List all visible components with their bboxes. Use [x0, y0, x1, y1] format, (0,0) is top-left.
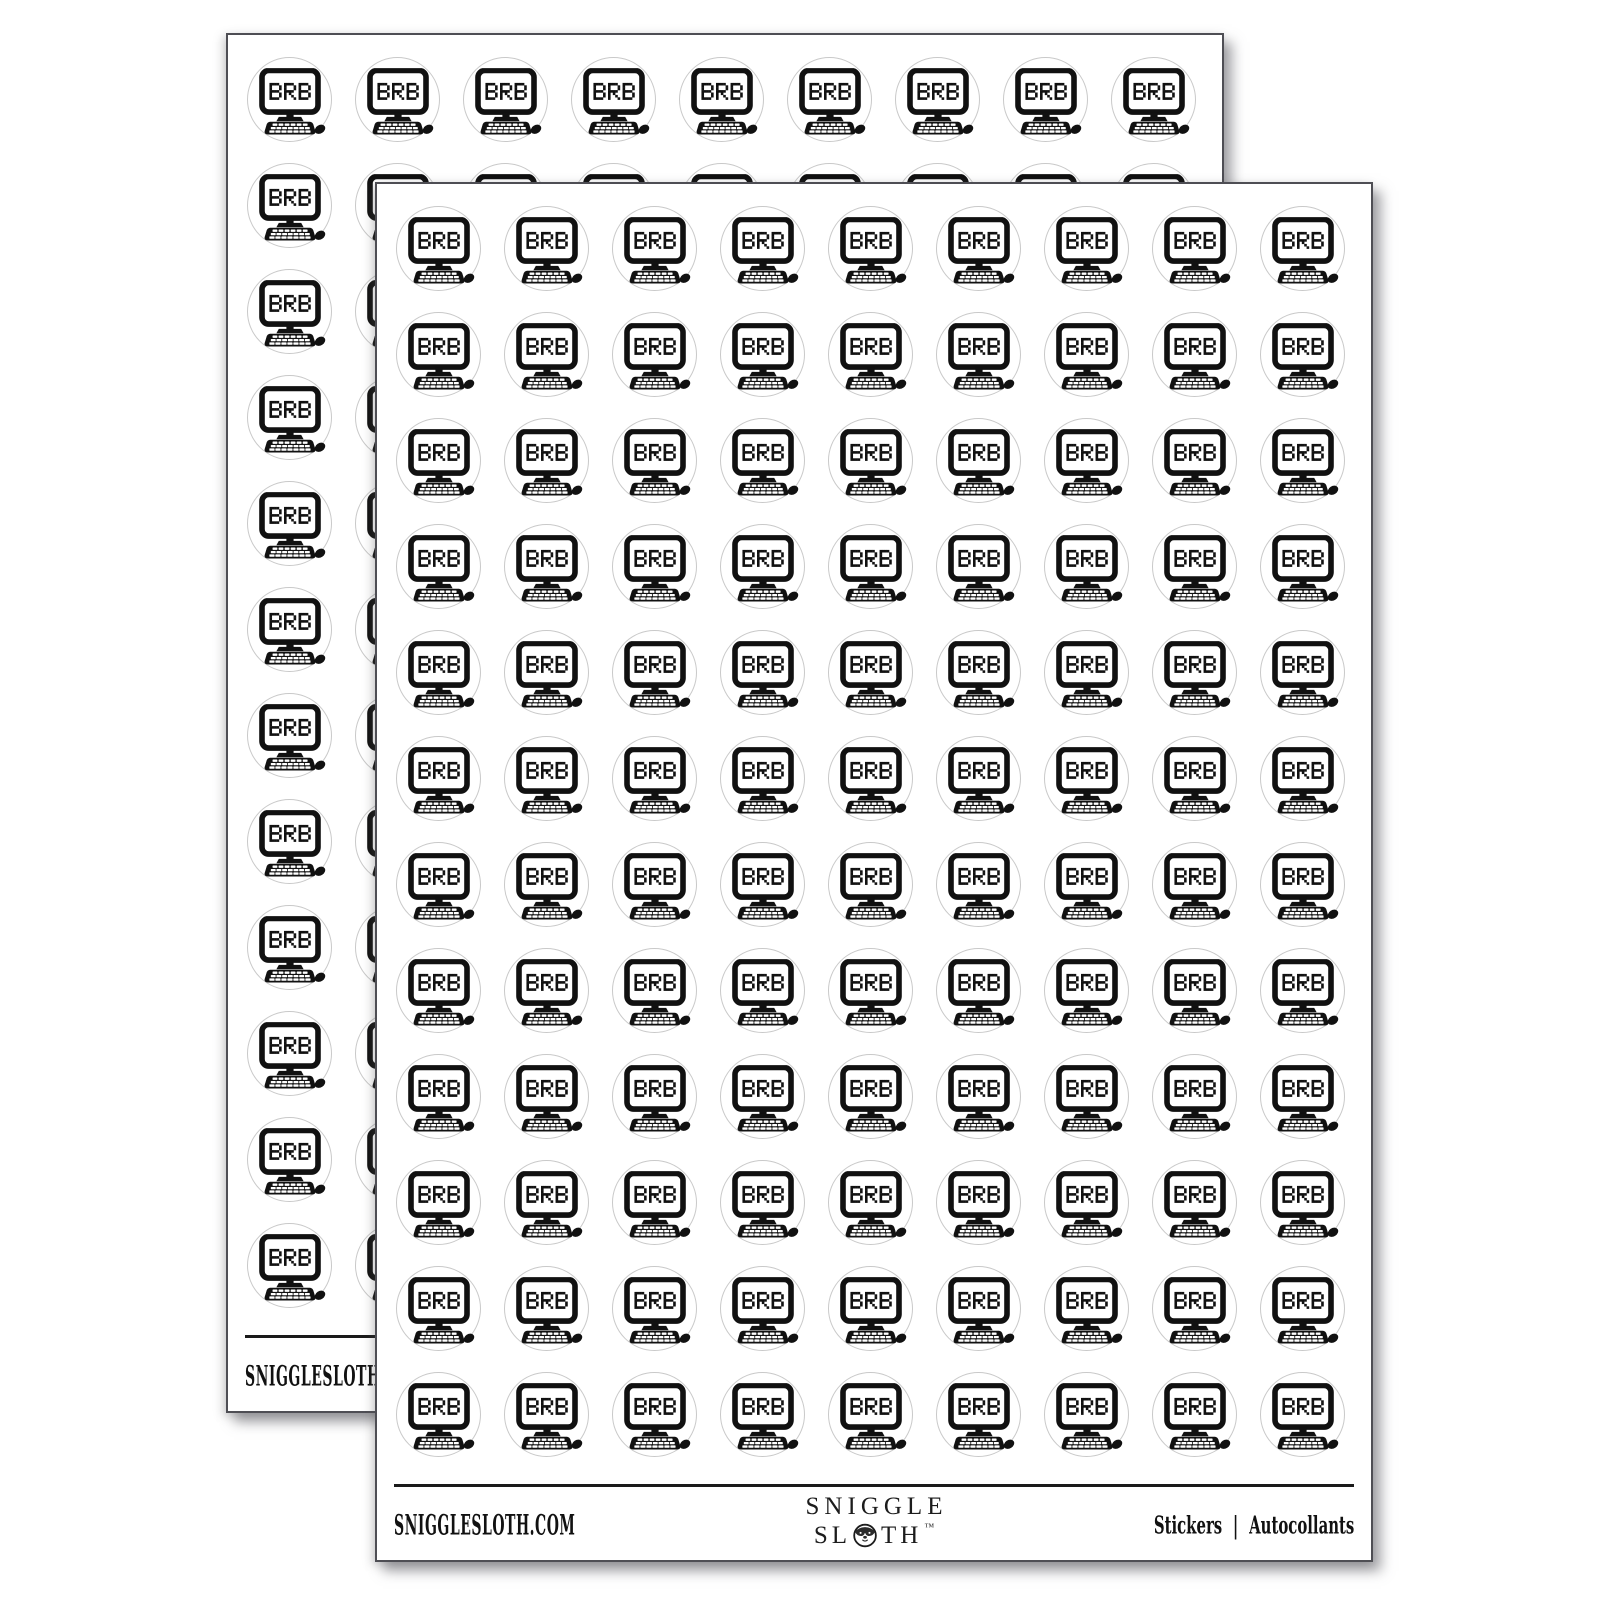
sticker-brb [247, 269, 332, 354]
brb-computer-monitor-keyboard-mouse-icon [507, 1171, 587, 1240]
sticker-brb [247, 481, 332, 566]
brb-computer-monitor-keyboard-mouse-icon [1155, 323, 1235, 392]
brb-computer-monitor-keyboard-mouse-icon [250, 704, 330, 773]
sticker-brb [1044, 312, 1129, 397]
brb-computer-monitor-keyboard-mouse-icon [507, 641, 587, 710]
sticker-brb [612, 418, 697, 503]
sticker-brb [504, 1266, 589, 1351]
brb-computer-monitor-keyboard-mouse-icon [507, 1277, 587, 1346]
brb-computer-monitor-keyboard-mouse-icon [831, 429, 911, 498]
sticker-brb [1260, 948, 1345, 1033]
brb-computer-monitor-keyboard-mouse-icon [507, 853, 587, 922]
brb-computer-monitor-keyboard-mouse-icon [723, 853, 803, 922]
brb-computer-monitor-keyboard-mouse-icon [1047, 1171, 1127, 1240]
brb-computer-monitor-keyboard-mouse-icon [399, 959, 479, 1028]
brb-computer-monitor-keyboard-mouse-icon [507, 535, 587, 604]
brb-computer-monitor-keyboard-mouse-icon [831, 747, 911, 816]
sticker-brb [396, 206, 481, 291]
brb-computer-monitor-keyboard-mouse-icon [1155, 853, 1235, 922]
sticker-brb [936, 842, 1021, 927]
brb-computer-monitor-keyboard-mouse-icon [1263, 429, 1343, 498]
brb-computer-monitor-keyboard-mouse-icon [939, 959, 1019, 1028]
sticker-brb [1044, 524, 1129, 609]
sticker-brb [1152, 418, 1237, 503]
sticker-brb [1152, 1372, 1237, 1457]
brb-computer-monitor-keyboard-mouse-icon [831, 1277, 911, 1346]
brand-logo: SNIGGLE SL TH ™ [801, 1494, 948, 1548]
brb-computer-monitor-keyboard-mouse-icon [831, 535, 911, 604]
brb-computer-monitor-keyboard-mouse-icon [250, 598, 330, 667]
brb-computer-monitor-keyboard-mouse-icon [615, 1171, 695, 1240]
brb-computer-monitor-keyboard-mouse-icon [1155, 429, 1235, 498]
brb-computer-monitor-keyboard-mouse-icon [250, 810, 330, 879]
sticker-grid [396, 206, 1345, 1457]
brb-computer-monitor-keyboard-mouse-icon [831, 1065, 911, 1134]
brb-computer-monitor-keyboard-mouse-icon [1047, 1383, 1127, 1452]
brb-computer-monitor-keyboard-mouse-icon [939, 535, 1019, 604]
sticker-brb [612, 842, 697, 927]
brb-computer-monitor-keyboard-mouse-icon [723, 641, 803, 710]
sticker-brb [247, 693, 332, 778]
sticker-brb [720, 206, 805, 291]
sticker-brb [936, 948, 1021, 1033]
brb-computer-monitor-keyboard-mouse-icon [1155, 1383, 1235, 1452]
sticker-brb [247, 799, 332, 884]
brb-computer-monitor-keyboard-mouse-icon [615, 959, 695, 1028]
sticker-brb [1260, 206, 1345, 291]
product-image: SNIGGLESLOTH.COM SNIGGLE SL TH ™ Sticker… [0, 0, 1600, 1600]
brb-computer-monitor-keyboard-mouse-icon [250, 1022, 330, 1091]
brb-computer-monitor-keyboard-mouse-icon [1047, 217, 1127, 286]
sticker-brb [504, 312, 589, 397]
sticker-brb [1044, 842, 1129, 927]
sticker-brb [1044, 736, 1129, 821]
brb-computer-monitor-keyboard-mouse-icon [939, 853, 1019, 922]
sticker-brb [1044, 948, 1129, 1033]
brb-computer-monitor-keyboard-mouse-icon [1047, 641, 1127, 710]
sticker-brb [936, 1160, 1021, 1245]
sticker-brb [1044, 418, 1129, 503]
sticker-brb [828, 1266, 913, 1351]
brb-computer-monitor-keyboard-mouse-icon [615, 641, 695, 710]
sticker-brb [612, 1160, 697, 1245]
sticker-brb [1044, 1160, 1129, 1245]
brb-computer-monitor-keyboard-mouse-icon [399, 535, 479, 604]
sticker-brb [247, 375, 332, 460]
brb-computer-monitor-keyboard-mouse-icon [1263, 747, 1343, 816]
brb-computer-monitor-keyboard-mouse-icon [615, 1065, 695, 1134]
sticker-brb [247, 587, 332, 672]
sticker-brb [1260, 1160, 1345, 1245]
brb-computer-monitor-keyboard-mouse-icon [507, 747, 587, 816]
sticker-brb [828, 1160, 913, 1245]
brb-computer-monitor-keyboard-mouse-icon [399, 323, 479, 392]
product-type-labels: Stickers | Autocollants [1154, 1511, 1354, 1540]
brb-computer-monitor-keyboard-mouse-icon [615, 535, 695, 604]
sticker-brb [396, 312, 481, 397]
sticker-brb [504, 1054, 589, 1139]
sticker-brb [720, 948, 805, 1033]
sticker-brb [1044, 630, 1129, 715]
trademark-symbol: ™ [924, 1523, 934, 1533]
brb-computer-monitor-keyboard-mouse-icon [723, 1065, 803, 1134]
sticker-brb [504, 1160, 589, 1245]
brb-computer-monitor-keyboard-mouse-icon [1263, 1277, 1343, 1346]
sticker-brb [396, 948, 481, 1033]
sticker-brb [936, 206, 1021, 291]
sticker-brb [612, 312, 697, 397]
brb-computer-monitor-keyboard-mouse-icon [1155, 535, 1235, 604]
brb-computer-monitor-keyboard-mouse-icon [615, 323, 695, 392]
sticker-brb [828, 312, 913, 397]
brb-computer-monitor-keyboard-mouse-icon [1263, 853, 1343, 922]
brb-computer-monitor-keyboard-mouse-icon [250, 492, 330, 561]
sticker-brb [1260, 1054, 1345, 1139]
sticker-brb [571, 57, 656, 142]
brb-computer-monitor-keyboard-mouse-icon [615, 1383, 695, 1452]
sticker-brb [1152, 736, 1237, 821]
brb-computer-monitor-keyboard-mouse-icon [831, 959, 911, 1028]
brb-computer-monitor-keyboard-mouse-icon [723, 535, 803, 604]
brb-computer-monitor-keyboard-mouse-icon [507, 429, 587, 498]
sticker-brb [936, 630, 1021, 715]
sticker-brb [1260, 312, 1345, 397]
brb-computer-monitor-keyboard-mouse-icon [1047, 747, 1127, 816]
brb-computer-monitor-keyboard-mouse-icon [466, 68, 546, 137]
brb-computer-monitor-keyboard-mouse-icon [399, 747, 479, 816]
sticker-brb [720, 842, 805, 927]
brb-computer-monitor-keyboard-mouse-icon [250, 386, 330, 455]
brb-computer-monitor-keyboard-mouse-icon [1047, 1065, 1127, 1134]
sticker-brb [828, 736, 913, 821]
sticker-brb [720, 312, 805, 397]
brb-computer-monitor-keyboard-mouse-icon [250, 1128, 330, 1197]
brb-computer-monitor-keyboard-mouse-icon [358, 68, 438, 137]
brb-computer-monitor-keyboard-mouse-icon [399, 217, 479, 286]
sticker-brb [355, 57, 440, 142]
sticker-brb [504, 842, 589, 927]
sticker-brb [1003, 57, 1088, 142]
sticker-sheet-front: SNIGGLESLOTH.COM SNIGGLE SL TH ™ Sticker… [375, 182, 1373, 1562]
brb-computer-monitor-keyboard-mouse-icon [615, 217, 695, 286]
brb-computer-monitor-keyboard-mouse-icon [1263, 641, 1343, 710]
brb-computer-monitor-keyboard-mouse-icon [723, 1277, 803, 1346]
sticker-brb [936, 736, 1021, 821]
brb-computer-monitor-keyboard-mouse-icon [1114, 68, 1194, 137]
sticker-brb [612, 948, 697, 1033]
sticker-brb [1260, 1266, 1345, 1351]
sticker-brb [247, 57, 332, 142]
sticker-brb [720, 736, 805, 821]
brb-computer-monitor-keyboard-mouse-icon [1263, 535, 1343, 604]
sticker-brb [504, 206, 589, 291]
sticker-brb [1152, 206, 1237, 291]
website-url: SNIGGLESLOTH.COM [394, 1509, 575, 1542]
brb-computer-monitor-keyboard-mouse-icon [399, 1383, 479, 1452]
brb-computer-monitor-keyboard-mouse-icon [939, 323, 1019, 392]
brb-computer-monitor-keyboard-mouse-icon [1155, 1065, 1235, 1134]
sticker-brb [1044, 1266, 1129, 1351]
brb-computer-monitor-keyboard-mouse-icon [250, 916, 330, 985]
brb-computer-monitor-keyboard-mouse-icon [682, 68, 762, 137]
brb-computer-monitor-keyboard-mouse-icon [399, 853, 479, 922]
brb-computer-monitor-keyboard-mouse-icon [399, 1171, 479, 1240]
sticker-brb [1260, 1372, 1345, 1457]
brb-computer-monitor-keyboard-mouse-icon [939, 1277, 1019, 1346]
brb-computer-monitor-keyboard-mouse-icon [723, 1171, 803, 1240]
brb-computer-monitor-keyboard-mouse-icon [790, 68, 870, 137]
brb-computer-monitor-keyboard-mouse-icon [939, 1171, 1019, 1240]
sticker-brb [1152, 1054, 1237, 1139]
brb-computer-monitor-keyboard-mouse-icon [723, 217, 803, 286]
sticker-brb [828, 1054, 913, 1139]
sticker-brb [504, 736, 589, 821]
sticker-brb [504, 630, 589, 715]
brb-computer-monitor-keyboard-mouse-icon [1047, 1277, 1127, 1346]
sticker-brb [936, 1054, 1021, 1139]
sticker-brb [1260, 524, 1345, 609]
brb-computer-monitor-keyboard-mouse-icon [1047, 323, 1127, 392]
sticker-brb [828, 842, 913, 927]
sloth-face-icon [853, 1523, 878, 1548]
sticker-brb [396, 418, 481, 503]
sticker-brb [720, 418, 805, 503]
sticker-brb [247, 1223, 332, 1308]
sticker-brb [612, 1054, 697, 1139]
sticker-brb [396, 524, 481, 609]
brb-computer-monitor-keyboard-mouse-icon [831, 323, 911, 392]
brb-computer-monitor-keyboard-mouse-icon [615, 429, 695, 498]
sticker-brb [1152, 1266, 1237, 1351]
sticker-brb [936, 1372, 1021, 1457]
sticker-brb [720, 1372, 805, 1457]
brb-computer-monitor-keyboard-mouse-icon [939, 1065, 1019, 1134]
brb-computer-monitor-keyboard-mouse-icon [939, 747, 1019, 816]
sticker-brb [1111, 57, 1196, 142]
type-french: Autocollants [1249, 1511, 1354, 1540]
sticker-brb [1260, 736, 1345, 821]
brb-computer-monitor-keyboard-mouse-icon [1047, 959, 1127, 1028]
sticker-brb [828, 948, 913, 1033]
brb-computer-monitor-keyboard-mouse-icon [1263, 323, 1343, 392]
brb-computer-monitor-keyboard-mouse-icon [250, 1234, 330, 1303]
sticker-brb [396, 1160, 481, 1245]
sticker-brb [396, 842, 481, 927]
sticker-brb [828, 524, 913, 609]
sticker-brb [612, 630, 697, 715]
type-english: Stickers [1154, 1511, 1222, 1540]
sticker-brb [720, 1054, 805, 1139]
sticker-brb [679, 57, 764, 142]
brb-computer-monitor-keyboard-mouse-icon [723, 1383, 803, 1452]
brb-computer-monitor-keyboard-mouse-icon [831, 217, 911, 286]
sticker-brb [612, 1372, 697, 1457]
sticker-brb [396, 1266, 481, 1351]
brb-computer-monitor-keyboard-mouse-icon [250, 280, 330, 349]
footer-rule [394, 1484, 1354, 1487]
brb-computer-monitor-keyboard-mouse-icon [723, 429, 803, 498]
brb-computer-monitor-keyboard-mouse-icon [399, 641, 479, 710]
brb-computer-monitor-keyboard-mouse-icon [831, 853, 911, 922]
sticker-brb [1152, 842, 1237, 927]
sticker-brb [787, 57, 872, 142]
brb-computer-monitor-keyboard-mouse-icon [831, 1171, 911, 1240]
brb-computer-monitor-keyboard-mouse-icon [615, 1277, 695, 1346]
sticker-brb [247, 1011, 332, 1096]
brb-computer-monitor-keyboard-mouse-icon [1047, 535, 1127, 604]
sticker-brb [1044, 1054, 1129, 1139]
brb-computer-monitor-keyboard-mouse-icon [507, 959, 587, 1028]
sticker-brb [936, 418, 1021, 503]
brb-computer-monitor-keyboard-mouse-icon [399, 1065, 479, 1134]
separator: | [1233, 1511, 1238, 1540]
sticker-brb [396, 630, 481, 715]
brb-computer-monitor-keyboard-mouse-icon [615, 747, 695, 816]
sticker-brb [1152, 630, 1237, 715]
sticker-brb [1260, 418, 1345, 503]
brb-computer-monitor-keyboard-mouse-icon [1047, 429, 1127, 498]
sticker-brb [828, 630, 913, 715]
sticker-brb [247, 163, 332, 248]
sticker-brb [720, 1266, 805, 1351]
sticker-brb [247, 905, 332, 990]
brb-computer-monitor-keyboard-mouse-icon [615, 853, 695, 922]
brb-computer-monitor-keyboard-mouse-icon [1155, 641, 1235, 710]
brb-computer-monitor-keyboard-mouse-icon [1263, 959, 1343, 1028]
sticker-brb [463, 57, 548, 142]
sticker-brb [396, 736, 481, 821]
sticker-brb [612, 1266, 697, 1351]
sheet-footer: SNIGGLESLOTH.COM SNIGGLE SL TH ™ Sticker… [394, 1484, 1354, 1558]
sticker-brb [720, 1160, 805, 1245]
sticker-brb [1044, 206, 1129, 291]
sticker-brb [504, 418, 589, 503]
brb-computer-monitor-keyboard-mouse-icon [507, 217, 587, 286]
brb-computer-monitor-keyboard-mouse-icon [723, 959, 803, 1028]
brb-computer-monitor-keyboard-mouse-icon [250, 174, 330, 243]
sticker-brb [504, 524, 589, 609]
sticker-brb [1152, 312, 1237, 397]
brb-computer-monitor-keyboard-mouse-icon [1155, 959, 1235, 1028]
brb-computer-monitor-keyboard-mouse-icon [939, 1383, 1019, 1452]
sticker-brb [1152, 948, 1237, 1033]
brb-computer-monitor-keyboard-mouse-icon [1155, 1277, 1235, 1346]
sticker-brb [247, 1117, 332, 1202]
brb-computer-monitor-keyboard-mouse-icon [1155, 747, 1235, 816]
brb-computer-monitor-keyboard-mouse-icon [250, 68, 330, 137]
sticker-brb [828, 418, 913, 503]
sticker-brb [612, 736, 697, 821]
brb-computer-monitor-keyboard-mouse-icon [723, 747, 803, 816]
brb-computer-monitor-keyboard-mouse-icon [507, 1383, 587, 1452]
sticker-brb [828, 1372, 913, 1457]
sticker-brb [504, 1372, 589, 1457]
brb-computer-monitor-keyboard-mouse-icon [1263, 217, 1343, 286]
sticker-brb [396, 1054, 481, 1139]
sticker-brb [1260, 842, 1345, 927]
brb-computer-monitor-keyboard-mouse-icon [723, 323, 803, 392]
brb-computer-monitor-keyboard-mouse-icon [1263, 1065, 1343, 1134]
sticker-brb [612, 206, 697, 291]
sticker-brb [895, 57, 980, 142]
brb-computer-monitor-keyboard-mouse-icon [574, 68, 654, 137]
brb-computer-monitor-keyboard-mouse-icon [1006, 68, 1086, 137]
brb-computer-monitor-keyboard-mouse-icon [1155, 217, 1235, 286]
sticker-brb [396, 1372, 481, 1457]
brb-computer-monitor-keyboard-mouse-icon [1263, 1383, 1343, 1452]
sticker-brb [936, 312, 1021, 397]
brb-computer-monitor-keyboard-mouse-icon [939, 429, 1019, 498]
sticker-brb [612, 524, 697, 609]
brb-computer-monitor-keyboard-mouse-icon [1263, 1171, 1343, 1240]
brb-computer-monitor-keyboard-mouse-icon [399, 1277, 479, 1346]
sticker-brb [1260, 630, 1345, 715]
sticker-brb [936, 524, 1021, 609]
brb-computer-monitor-keyboard-mouse-icon [831, 641, 911, 710]
sticker-brb [828, 206, 913, 291]
brb-computer-monitor-keyboard-mouse-icon [1047, 853, 1127, 922]
brb-computer-monitor-keyboard-mouse-icon [939, 641, 1019, 710]
brb-computer-monitor-keyboard-mouse-icon [939, 217, 1019, 286]
sticker-brb [1044, 1372, 1129, 1457]
brb-computer-monitor-keyboard-mouse-icon [507, 323, 587, 392]
brb-computer-monitor-keyboard-mouse-icon [1155, 1171, 1235, 1240]
sticker-brb [936, 1266, 1021, 1351]
brand-word-sloth: SL TH ™ [801, 1523, 948, 1548]
brb-computer-monitor-keyboard-mouse-icon [898, 68, 978, 137]
brb-computer-monitor-keyboard-mouse-icon [831, 1383, 911, 1452]
sticker-brb [720, 524, 805, 609]
sticker-brb [1152, 1160, 1237, 1245]
sticker-brb [504, 948, 589, 1033]
sticker-brb [720, 630, 805, 715]
brb-computer-monitor-keyboard-mouse-icon [507, 1065, 587, 1134]
brand-word-sniggle: SNIGGLE [801, 1494, 948, 1519]
sticker-brb [1152, 524, 1237, 609]
brb-computer-monitor-keyboard-mouse-icon [399, 429, 479, 498]
